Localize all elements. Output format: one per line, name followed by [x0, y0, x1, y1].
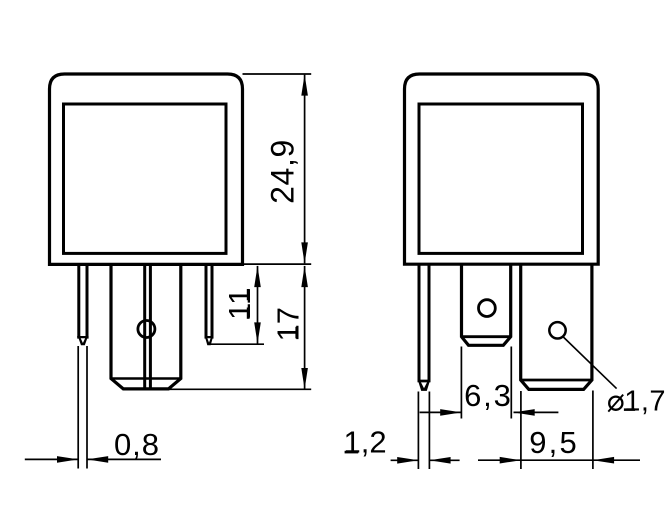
svg-text:11: 11	[222, 288, 257, 320]
svg-text:9,5: 9,5	[529, 425, 579, 460]
svg-text:1,7: 1,7	[624, 386, 666, 418]
svg-text:17: 17	[271, 307, 306, 341]
svg-text:24,9: 24,9	[265, 139, 301, 204]
svg-text:0,8: 0,8	[114, 427, 160, 462]
svg-text:6,3: 6,3	[464, 378, 513, 413]
svg-text:1,2: 1,2	[344, 425, 387, 460]
